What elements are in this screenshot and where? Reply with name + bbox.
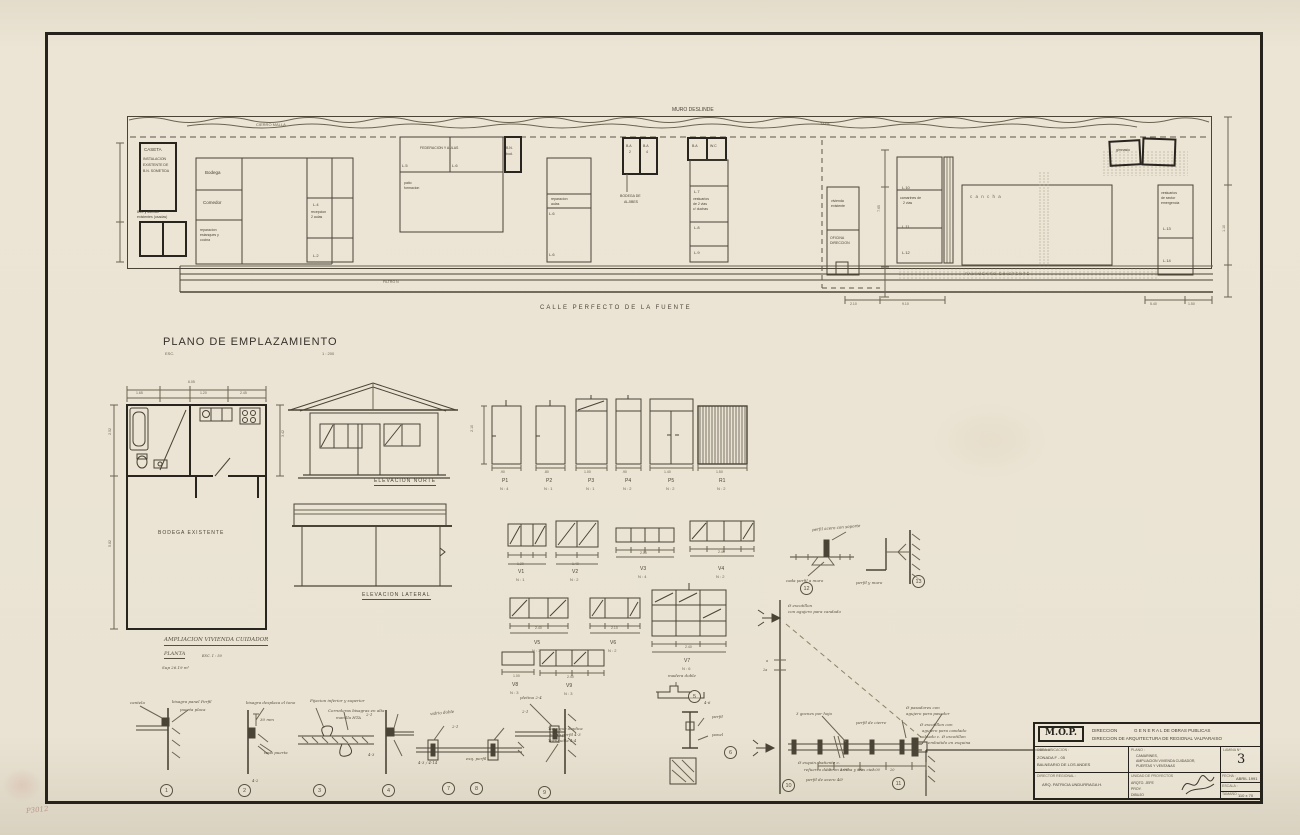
note-78-21: 2-1 <box>452 724 458 729</box>
win-v4-count: N : 2 <box>716 574 724 579</box>
room-reparacion-1: reparacion <box>200 228 217 232</box>
win-v9-tag: V9 <box>566 683 572 689</box>
door-tag-l14: L.14 <box>1163 258 1171 263</box>
detail-circle-6: 6 <box>724 746 737 759</box>
door-p2-width: .80 <box>544 470 549 474</box>
gate-detail-drawing <box>752 598 1052 798</box>
plan-dim-total: 6.05 <box>188 380 195 384</box>
door-p1-count: N : 4 <box>500 486 508 491</box>
room-ba-b2: 4 <box>646 150 648 154</box>
room-vest-3: c/ duchas <box>693 207 708 211</box>
note-tope-1: Tope que duplica <box>548 726 583 731</box>
room-ba-b: B.A <box>643 144 649 148</box>
note-2-1: 2-1 <box>366 712 372 717</box>
detail-circle-5: 5 <box>688 690 701 703</box>
gate-dim-3: 60 <box>858 768 862 772</box>
win-v5-tag: V5 <box>534 640 540 646</box>
note-tope-2: como perfil 4-3 <box>550 732 581 737</box>
street-name: CALLE PERFECTO DE LA FUENTE <box>540 305 692 313</box>
dim-9-10: 9.10 <box>902 302 909 306</box>
detail-circle-11: 11 <box>892 777 905 790</box>
door-tag-l7: L.7 <box>694 189 700 194</box>
corner-handwritten-mark: P3012 <box>26 805 49 816</box>
room-vestem-1: vestuarios <box>1161 191 1177 195</box>
door-p1-width: .90 <box>500 470 505 474</box>
plan-dim-h3: 3.42 <box>281 430 285 437</box>
room-vest-2: de 2 vias <box>693 202 707 206</box>
detail-circle-8: 8 <box>470 782 483 795</box>
label-caseta-3: B.N. SOMETIDA <box>143 169 169 173</box>
door-r1-width: 1.50 <box>716 470 723 474</box>
door-r1-count: N : 2 <box>717 486 725 491</box>
detail-circle-2: 2 <box>238 784 251 797</box>
gate-dim-2a: 2a <box>763 668 767 672</box>
note-goznes: 3 goznes por hoja <box>796 711 832 716</box>
tb-fecha-label: FECHA : <box>1222 774 1236 778</box>
label-caseta-1: INSTALACION <box>143 157 166 161</box>
win-v5-width: 2.40 <box>535 626 542 630</box>
detail-circle-13: 13 <box>912 575 925 588</box>
room-vivienda-2: existente <box>831 204 845 208</box>
win-v1-tag: V1 <box>518 569 524 575</box>
win-v7-width: 2.40 <box>685 645 692 649</box>
door-p2-tag: P2 <box>546 478 552 484</box>
win-v4-tag: V4 <box>718 566 724 572</box>
gate-dim-4: 1.00 <box>872 768 880 772</box>
door-p5-width: 1.40 <box>664 470 671 474</box>
tb-proy: PROY. <box>1131 787 1141 791</box>
plan-caption-title: AMPLIACION VIVIENDA CUIDADOR <box>164 637 268 646</box>
room-recepcion-1: recepcion <box>311 210 326 214</box>
plan-caption-planta: PLANTA <box>164 651 185 659</box>
detail-circle-4: 4 <box>382 784 395 797</box>
plan-dim-h2: 5.82 <box>108 540 112 547</box>
detail-circle-1: 1 <box>160 784 173 797</box>
door-tag-l11: L.11 <box>902 224 910 229</box>
plan-caption-sup: Sup 26.19 m² <box>162 665 189 670</box>
lateral-elevation-drawing <box>292 498 457 592</box>
note-escotillon-3: soldado c. Ø escotillon <box>920 734 966 739</box>
door-tag-l4: L.4 <box>313 202 319 207</box>
emplacement-esc-label: ESC. <box>165 351 174 356</box>
room-patio-1: patio <box>404 181 412 185</box>
drawing-sheet: CIERRO MALLA MURO DESLINDE TAPA CASETA I… <box>0 0 1300 835</box>
gate-dim-1: 20 <box>826 768 830 772</box>
label-caseta-2: EXISTENTE DE <box>143 163 168 167</box>
note-perfil-cierre: perfil de cierre <box>856 720 886 725</box>
tb-divider-h1 <box>1033 746 1262 747</box>
note-escotillon-top-2: con agujero para candado <box>788 609 841 614</box>
note-perfil: perfil <box>712 714 723 719</box>
gate-dim-2: 1.00 <box>840 768 848 772</box>
win-v1-width: 1.20 <box>517 562 524 566</box>
tb-obra-2: BALNEARIO DE LOS ANDES <box>1037 762 1090 767</box>
room-vestem-3: emergencia <box>1161 201 1179 205</box>
note-puerta-placa: puerta placa <box>180 707 206 712</box>
label-filtro: FILTRO N <box>383 280 399 284</box>
door-tag-l13: L.13 <box>1163 226 1171 231</box>
gate-dim-5: 20 <box>890 768 894 772</box>
note-bisagra-desplaza: bisagra desplaza el tono <box>246 700 295 705</box>
door-p4-width: .90 <box>622 470 627 474</box>
label-aljibes-1: BODEGA DE <box>620 194 641 198</box>
plan-dim-3: 2.45 <box>240 391 247 395</box>
door-tag-l6: L.6 <box>452 163 458 168</box>
note-30mm: 30 mm <box>260 717 274 722</box>
note-madera-doble: madera doble <box>668 673 696 678</box>
win-v8-width: 1.00 <box>513 674 520 678</box>
room-oficina-1: OFICINA <box>830 236 844 240</box>
tb-direccion: DIRECCION <box>1092 728 1117 734</box>
door-p4-count: N : 2 <box>623 486 631 491</box>
room-rep-aulas-2: aulas <box>551 202 559 206</box>
door-r1-tag: R1 <box>719 478 725 484</box>
emplacement-title: PLANO DE EMPLAZAMIENTO <box>163 336 338 350</box>
dim-1-10: 1.10 <box>1222 225 1226 232</box>
floor-plan-linework <box>108 378 288 636</box>
door-p4-tag: P4 <box>625 478 631 484</box>
win-v6-width: 2.10 <box>611 626 618 630</box>
label-muro-deslinde: MURO DESLINDE <box>672 107 714 113</box>
room-reparacion-3: cocina <box>200 238 210 242</box>
win-v9-width: 2.40 <box>567 675 574 679</box>
detail-circle-10: 10 <box>782 779 795 792</box>
tb-divider-h3 <box>1220 782 1262 783</box>
door-tag-l10: L.10 <box>902 185 910 190</box>
note-pasadores-1: Ø pasadores con <box>906 705 940 710</box>
door-p5-tag: P5 <box>668 478 674 484</box>
note-4-6: 4-6 <box>704 700 710 705</box>
door-tag-l6b: L.6 <box>549 211 555 216</box>
note-panel: panel <box>712 732 723 737</box>
label-caseta: CASETA <box>144 147 162 153</box>
dim-5-40: 5.40 <box>1150 302 1157 306</box>
tb-tamano-value: 110 x 70 <box>1238 793 1253 798</box>
win-v2-width: 1.40 <box>572 562 579 566</box>
door-p3-count: N : 1 <box>586 486 594 491</box>
plan-dim-2: 1.20 <box>200 391 207 395</box>
tb-lamina-number: 3 <box>1237 752 1245 768</box>
door-tag-l12: L.12 <box>902 250 910 255</box>
room-federacion: FEDERACION Y AULAS <box>420 146 458 150</box>
north-elevation-drawing <box>288 378 458 484</box>
room-camarines-1: camarines de <box>900 196 921 200</box>
door-tag-l8: L.8 <box>694 225 700 230</box>
signature-squiggle <box>1180 772 1218 798</box>
plan-dim-1: 1.65 <box>136 391 143 395</box>
label-aljibes-2: ALJIBES <box>624 200 638 204</box>
room-cancha: c a n c h a <box>970 194 1002 200</box>
door-tag-l9: L.9 <box>694 250 700 255</box>
tb-dibujo: DIBUJO <box>1131 793 1144 797</box>
room-ba-a2: 2 <box>629 150 631 154</box>
mop-logo: M.O.P. <box>1038 726 1084 742</box>
win-v6-count: N : 2 <box>608 648 616 653</box>
door-tag-l5: L.5 <box>402 163 408 168</box>
room-camarines-2: 2 vias <box>903 201 912 205</box>
north-elevation-label: ELEVACION NORTE <box>374 478 436 486</box>
note-tornquilla: Tornquilla 4-4 <box>548 738 576 743</box>
door-p3-width: 1.00 <box>584 470 591 474</box>
note-9-21: 2-1 <box>522 709 528 714</box>
door-p2-count: N : 1 <box>544 486 552 491</box>
tb-general-obras: G E N E R A L DE OBRAS PUBLICAS <box>1134 728 1210 734</box>
door-height-dim: 2.10 <box>470 425 474 432</box>
note-perfil-muro: perfil y muro <box>856 580 882 585</box>
win-v7-count: N : 6 <box>682 666 690 671</box>
note-perfil-acero-40: perfil de acero 4Ø <box>806 777 843 782</box>
note-escotillon-top-1: Ø escotillon <box>788 603 812 608</box>
detail-2-drawing <box>220 700 298 784</box>
tb-plano-2: AMPLIACION VIVIENDA CUIDADOR, <box>1136 759 1195 763</box>
dim-7-65: 7.65 <box>877 205 881 212</box>
room-bodega: Bodega <box>205 170 221 176</box>
win-v6-tag: V6 <box>610 640 616 646</box>
tb-plano-label: PLANO : <box>1131 748 1145 752</box>
tb-arqto-jefe: ARQTO. JEFE <box>1131 781 1154 785</box>
room-vivienda-1: vivienda <box>831 199 844 203</box>
win-v7-tag: V7 <box>684 658 690 664</box>
tb-director-label: DIRECTOR REGIONAL : <box>1037 774 1076 778</box>
label-ba-duchas-1: B.A. y duchas <box>137 210 159 214</box>
tb-obra-label: OBRA UBICACION : <box>1037 748 1069 752</box>
win-v3-count: N : 4 <box>638 574 646 579</box>
room-vestem-2: de sector <box>1161 196 1175 200</box>
room-bawc-1: B.A <box>692 144 698 148</box>
win-v5-count: N : 3 <box>532 648 540 653</box>
tb-escala-label: ESCALA : <box>1222 784 1238 788</box>
door-p3-tag: P3 <box>588 478 594 484</box>
tb-plano-1: CAMARINES, <box>1136 754 1158 758</box>
plan-room-label: BODEGA EXISTENTE <box>158 530 224 536</box>
door-tag-l2: L.2 <box>313 253 319 258</box>
detail-4-drawing <box>356 698 420 784</box>
note-batiente-1: Ø esquin. batiente c. <box>798 760 840 765</box>
tb-director-name: ARQ. PATRICIA UNDURRAGA H. <box>1042 782 1102 787</box>
tb-divider-v1 <box>1128 746 1129 800</box>
win-v3-width: 2.00 <box>640 551 647 555</box>
room-comedor: Comedor <box>203 200 222 206</box>
room-reparacion-2: estanques y <box>200 233 219 237</box>
dim-1-50: 1.50 <box>1188 302 1195 306</box>
win-v2-tag: V2 <box>572 569 578 575</box>
tb-plano-3: PUERTAS Y VENTANAS <box>1136 764 1175 768</box>
room-rep-aulas-1: reparacion <box>551 197 568 201</box>
note-pletina: pletina 2-4 <box>520 695 542 700</box>
tb-obra-1: ZONADA F - 05 <box>1037 755 1065 760</box>
win-v2-count: N : 2 <box>570 577 578 582</box>
tb-divider-h2 <box>1033 772 1262 773</box>
detail-circle-7: 7 <box>442 782 455 795</box>
plan-dim-h1: 2.52 <box>108 428 112 435</box>
win-v3-tag: V3 <box>640 566 646 572</box>
win-v4-width: 2.40 <box>718 550 725 554</box>
note-escotillon-4: embutido en esquina <box>928 740 970 745</box>
note-escotillon-2: agujero para candado <box>922 728 966 733</box>
note-4-3-4-14: 4-3 / 4-14 <box>418 760 437 765</box>
detail-circle-3: 3 <box>313 784 326 797</box>
win-v1-count: N : 1 <box>516 577 524 582</box>
room-recepcion-2: 2 aulas <box>311 215 322 219</box>
room-ba-a: B.A <box>626 144 632 148</box>
tb-unidad-label: UNIDAD DE PROYECTOS <box>1131 774 1173 778</box>
tb-arquitectura: DIRECCION DE ARQUITECTURA DE REGIONAL VA… <box>1092 736 1222 742</box>
label-ba-duchas-2: existentes (usadas) <box>137 215 167 219</box>
tb-fecha-value: ABRIL 1991 <box>1236 776 1257 781</box>
scan-smudge <box>2 768 42 802</box>
room-oficina-2: DIRECCION <box>830 241 850 245</box>
gate-dim-a: a <box>766 659 768 663</box>
win-v8-tag: V8 <box>512 682 518 688</box>
lateral-elevation-label: ELEVACION LATERAL <box>362 592 431 600</box>
tb-tamano-label: TAMAÑO : <box>1222 792 1239 796</box>
label-tapa: TAPA <box>820 121 830 126</box>
room-vest-1: vestuarios <box>693 197 709 201</box>
label-pavimento: PAVIMENTO EXISTENTE <box>965 271 1030 276</box>
room-gimnasio: gimnasio <box>1116 148 1130 152</box>
emplacement-scale: 1 : 200 <box>322 351 334 356</box>
note-bisagra-panel: bisagra panel Perfil <box>172 699 212 704</box>
schedule-linework <box>480 395 770 705</box>
room-bn-1: B.N. <box>506 146 513 150</box>
mop-logo-text: M.O.P. <box>1045 728 1077 739</box>
note-escotillon-1: Ø escotillon con <box>920 722 953 727</box>
door-tag-l6c: L.6 <box>549 252 555 257</box>
room-bawc-2: W.C <box>710 144 717 148</box>
note-tapa-puerta: tapa puerta <box>264 750 288 755</box>
room-bn-2: bod. <box>506 152 513 156</box>
label-cierro-malla: CIERRO MALLA <box>256 122 286 127</box>
room-patio-2: formacion <box>404 186 419 190</box>
plan-caption-esc: ESC. 1 : 50 <box>202 654 222 658</box>
door-p5-count: N : 2 <box>666 486 674 491</box>
dim-2-10: 2.10 <box>850 302 857 306</box>
note-4-3: 4-3 <box>368 752 374 757</box>
note-esq-perfil: esq. perfil <box>466 756 486 761</box>
note-cantela: cantela <box>130 700 145 705</box>
note-pasadores-2: agujero para pasador <box>906 711 950 716</box>
detail-circle-12: 12 <box>800 582 813 595</box>
note-4-2: 4-2 <box>252 778 258 783</box>
site-plan-linework <box>127 106 1217 306</box>
detail-circle-9: 9 <box>538 786 551 799</box>
door-p1-tag: P1 <box>502 478 508 484</box>
